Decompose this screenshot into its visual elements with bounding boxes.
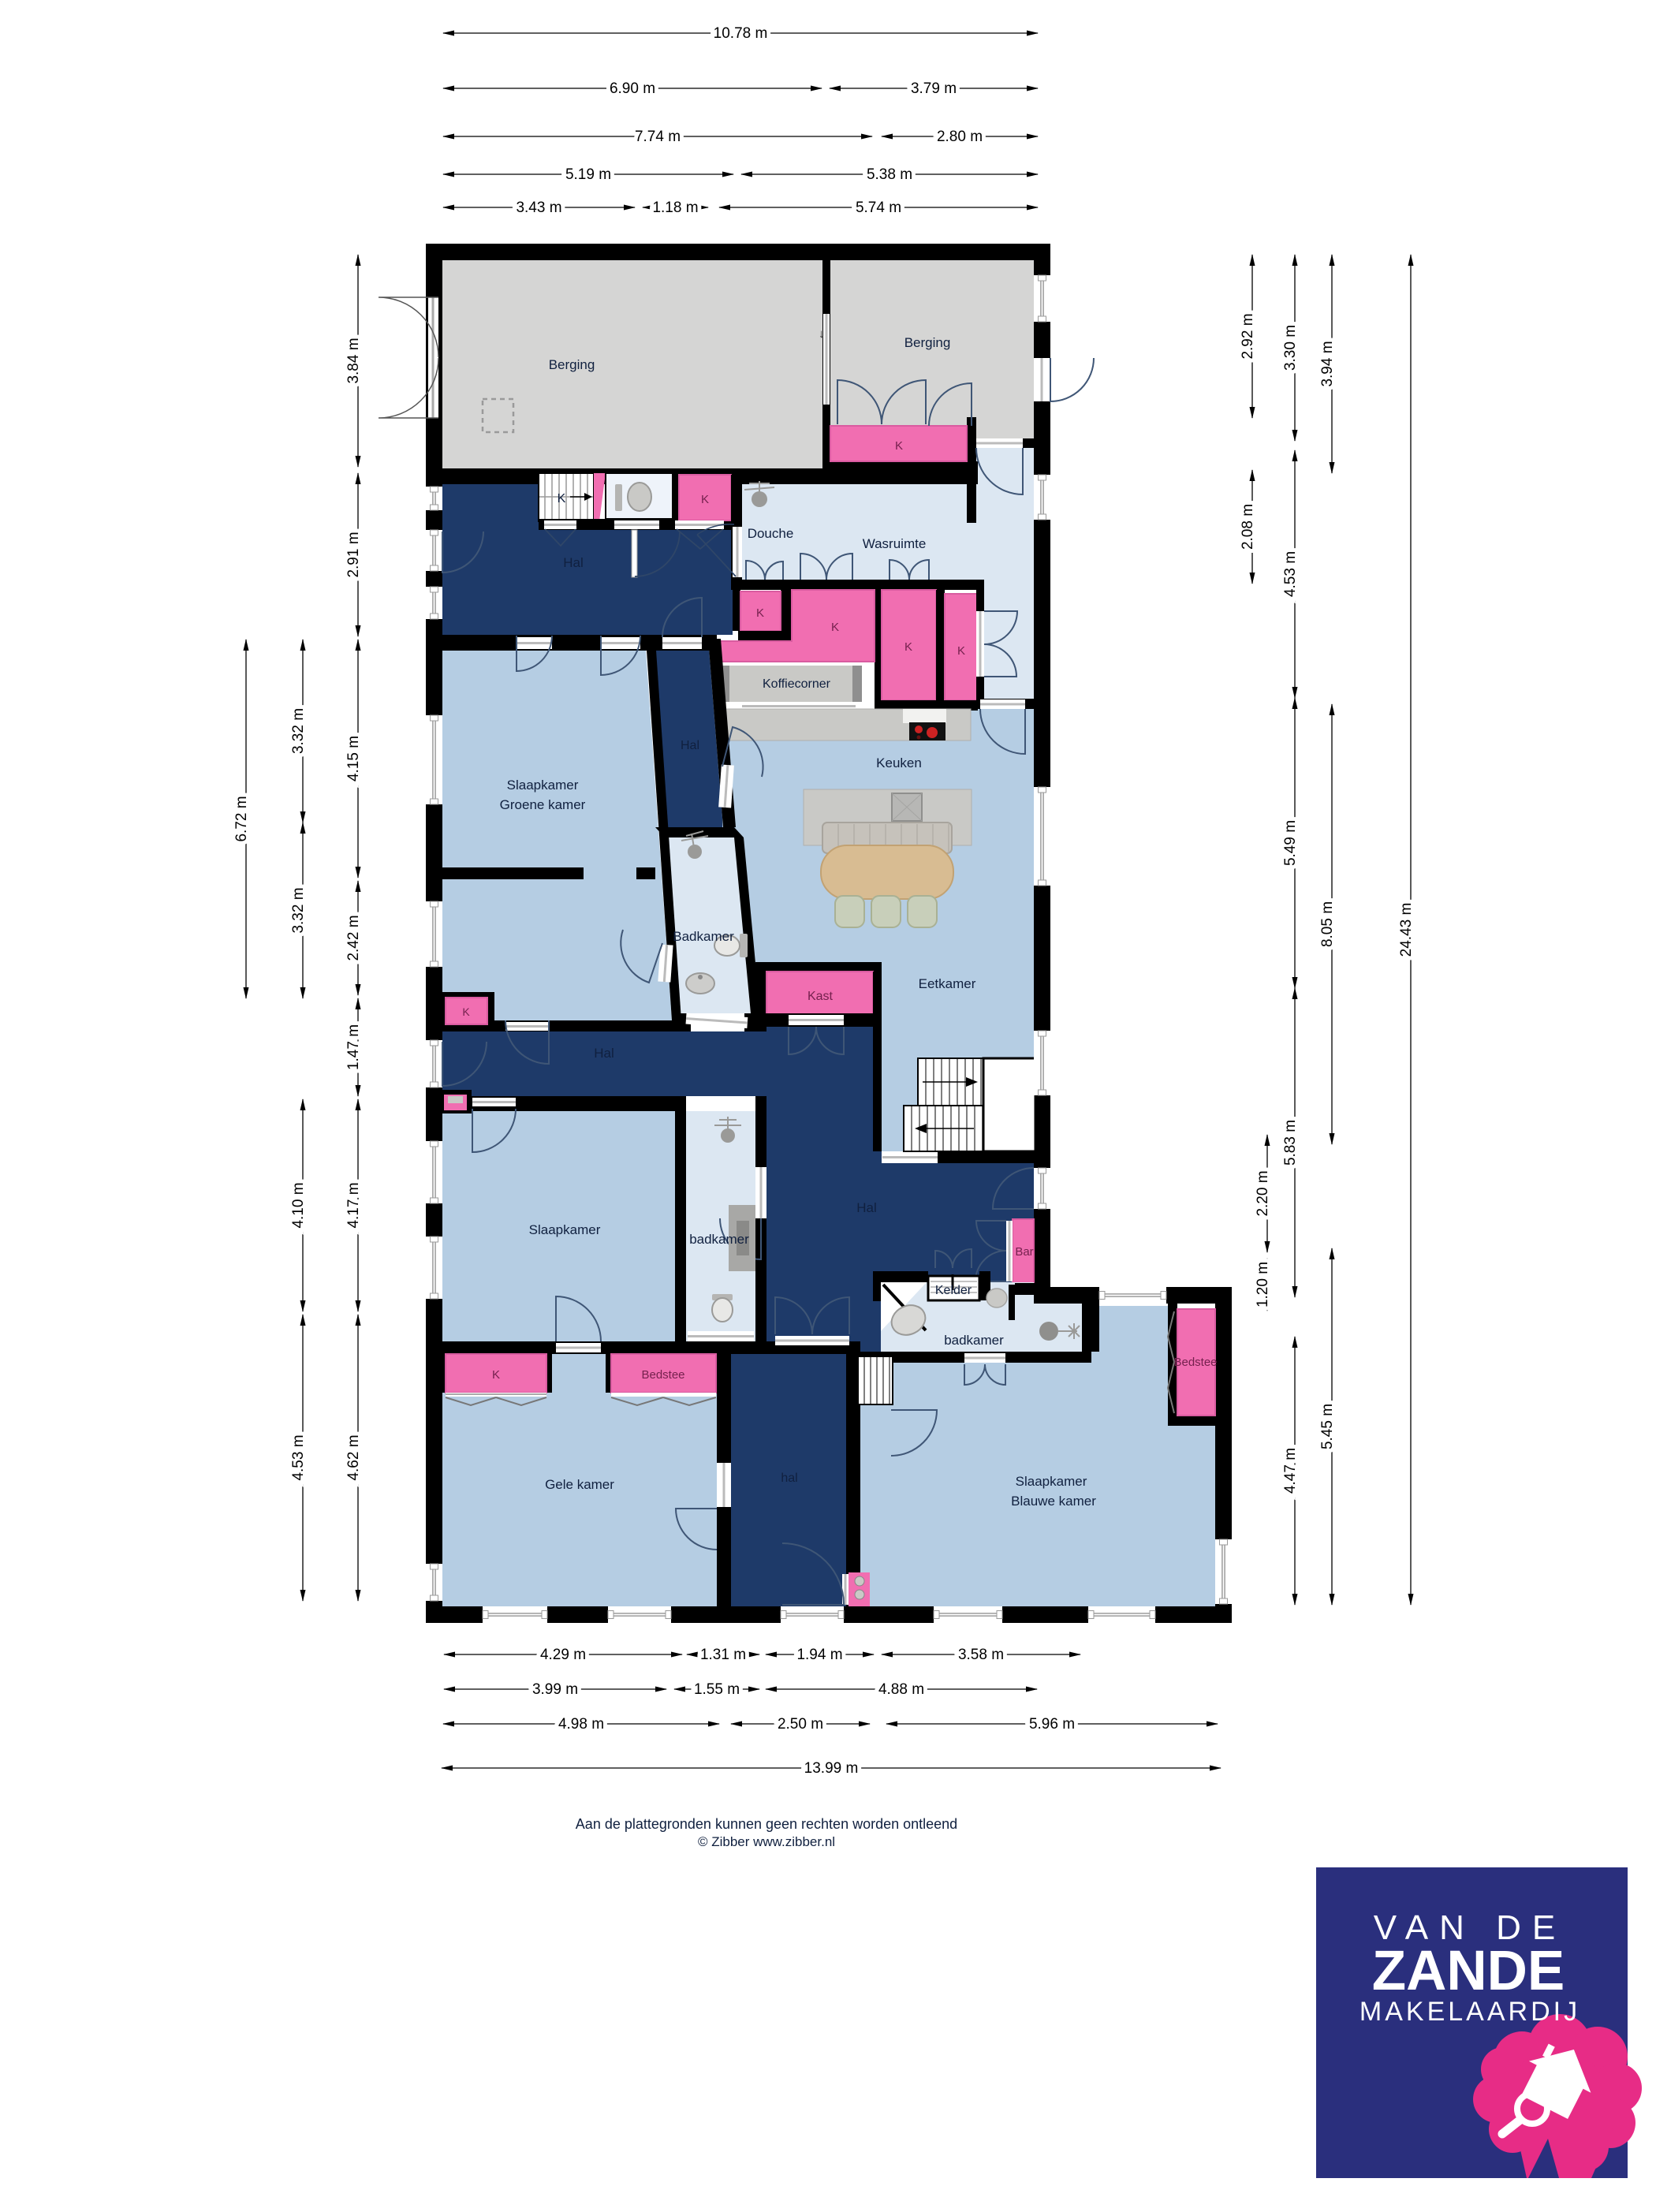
svg-text:13.99 m: 13.99 m bbox=[804, 1760, 859, 1777]
svg-text:K: K bbox=[957, 644, 965, 658]
svg-text:Kelder: Kelder bbox=[935, 1284, 972, 1297]
svg-text:Blauwe kamer: Blauwe kamer bbox=[1011, 1494, 1096, 1509]
svg-text:hal: hal bbox=[781, 1472, 797, 1485]
svg-text:badkamer: badkamer bbox=[689, 1232, 749, 1247]
svg-text:4.15 m: 4.15 m bbox=[345, 736, 362, 781]
svg-text:4.62 m: 4.62 m bbox=[345, 1434, 362, 1480]
svg-text:Berging: Berging bbox=[549, 357, 595, 372]
svg-text:6.90 m: 6.90 m bbox=[610, 80, 655, 97]
svg-text:K: K bbox=[895, 439, 903, 453]
svg-text:1.55 m: 1.55 m bbox=[694, 1681, 740, 1698]
svg-text:4.53 m: 4.53 m bbox=[290, 1434, 307, 1480]
svg-text:1.31 m: 1.31 m bbox=[700, 1647, 746, 1663]
svg-text:Douche: Douche bbox=[748, 526, 794, 541]
svg-text:5.74 m: 5.74 m bbox=[856, 200, 901, 216]
svg-text:Hal: Hal bbox=[681, 739, 699, 752]
svg-text:Eetkamer: Eetkamer bbox=[919, 976, 976, 991]
svg-text:K: K bbox=[904, 640, 912, 654]
svg-text:7.74 m: 7.74 m bbox=[635, 129, 681, 145]
svg-text:2.42 m: 2.42 m bbox=[345, 915, 362, 961]
svg-text:MAKELAARDIJ: MAKELAARDIJ bbox=[1359, 1997, 1580, 2027]
svg-text:4.17 m: 4.17 m bbox=[345, 1182, 362, 1228]
svg-text:Slaapkamer: Slaapkamer bbox=[1016, 1474, 1087, 1489]
svg-text:Groene kamer: Groene kamer bbox=[500, 797, 586, 812]
svg-text:Hal: Hal bbox=[856, 1200, 877, 1215]
svg-text:3.32 m: 3.32 m bbox=[290, 887, 307, 933]
svg-text:Slaapkamer: Slaapkamer bbox=[507, 778, 579, 793]
svg-text:6.72 m: 6.72 m bbox=[233, 796, 250, 841]
svg-text:Bedstee: Bedstee bbox=[641, 1368, 684, 1382]
svg-text:4.10 m: 4.10 m bbox=[290, 1182, 307, 1228]
svg-text:4.88 m: 4.88 m bbox=[878, 1681, 924, 1698]
svg-text:2.80 m: 2.80 m bbox=[937, 129, 983, 145]
svg-text:badkamer: badkamer bbox=[944, 1333, 1004, 1348]
svg-text:ZANDE: ZANDE bbox=[1372, 1940, 1565, 2002]
svg-text:2.08 m: 2.08 m bbox=[1240, 504, 1256, 550]
svg-text:K: K bbox=[462, 1005, 470, 1018]
svg-text:5.19 m: 5.19 m bbox=[565, 166, 611, 183]
svg-text:1.20 m: 1.20 m bbox=[1255, 1262, 1271, 1307]
svg-text:K: K bbox=[701, 493, 709, 506]
svg-text:5.38 m: 5.38 m bbox=[867, 166, 912, 183]
svg-text:3.84 m: 3.84 m bbox=[345, 338, 362, 383]
svg-text:Bedstee: Bedstee bbox=[1173, 1356, 1217, 1369]
svg-text:↓: ↓ bbox=[819, 327, 825, 341]
svg-text:10.78 m: 10.78 m bbox=[714, 25, 768, 42]
svg-text:Wasruimte: Wasruimte bbox=[863, 536, 927, 551]
svg-text:K: K bbox=[756, 606, 764, 620]
svg-text:4.29 m: 4.29 m bbox=[540, 1647, 586, 1663]
svg-text:3.79 m: 3.79 m bbox=[911, 80, 957, 97]
svg-text:3.58 m: 3.58 m bbox=[958, 1647, 1004, 1663]
svg-text:2.50 m: 2.50 m bbox=[778, 1716, 823, 1733]
svg-text:Gele kamer: Gele kamer bbox=[545, 1477, 614, 1492]
svg-text:3.32 m: 3.32 m bbox=[290, 708, 307, 754]
svg-text:3.43 m: 3.43 m bbox=[516, 200, 561, 216]
svg-text:Hal: Hal bbox=[563, 555, 584, 570]
svg-text:24.43 m: 24.43 m bbox=[1398, 903, 1415, 957]
svg-text:Hal: Hal bbox=[594, 1046, 614, 1061]
svg-text:K: K bbox=[492, 1368, 500, 1382]
svg-text:Berging: Berging bbox=[904, 335, 951, 350]
svg-text:1.18 m: 1.18 m bbox=[652, 200, 698, 216]
svg-text:5.45 m: 5.45 m bbox=[1319, 1404, 1336, 1449]
svg-text:2.92 m: 2.92 m bbox=[1240, 313, 1256, 359]
svg-text:5.96 m: 5.96 m bbox=[1029, 1716, 1075, 1733]
svg-text:Koffiecorner: Koffiecorner bbox=[763, 677, 831, 691]
svg-text:Aan de plattegronden kunnen ge: Aan de plattegronden kunnen geen rechten… bbox=[576, 1816, 957, 1832]
svg-text:3.94 m: 3.94 m bbox=[1319, 341, 1336, 386]
svg-text:4.53 m: 4.53 m bbox=[1282, 551, 1299, 597]
svg-text:5.49 m: 5.49 m bbox=[1282, 820, 1299, 866]
svg-text:1.94 m: 1.94 m bbox=[796, 1647, 842, 1663]
svg-text:3.99 m: 3.99 m bbox=[532, 1681, 578, 1698]
svg-text:3.30 m: 3.30 m bbox=[1282, 325, 1299, 371]
svg-text:Slaapkamer: Slaapkamer bbox=[529, 1222, 601, 1237]
svg-text:Kast: Kast bbox=[807, 990, 834, 1003]
svg-text:4.98 m: 4.98 m bbox=[558, 1716, 604, 1733]
svg-text:Bar: Bar bbox=[1015, 1245, 1033, 1259]
svg-text:2.91 m: 2.91 m bbox=[345, 532, 362, 577]
svg-text:Badkamer: Badkamer bbox=[673, 929, 734, 944]
svg-text:K: K bbox=[831, 621, 839, 634]
svg-text:2.20 m: 2.20 m bbox=[1255, 1170, 1271, 1216]
svg-text:5.83 m: 5.83 m bbox=[1282, 1120, 1299, 1166]
svg-text:K: K bbox=[558, 492, 566, 505]
svg-text:1.47 m: 1.47 m bbox=[345, 1024, 362, 1070]
svg-text:8.05 m: 8.05 m bbox=[1319, 901, 1336, 947]
svg-text:© Zibber www.zibber.nl: © Zibber www.zibber.nl bbox=[698, 1834, 835, 1849]
svg-text:Keuken: Keuken bbox=[876, 755, 922, 770]
svg-text:4.47 m: 4.47 m bbox=[1282, 1448, 1299, 1494]
